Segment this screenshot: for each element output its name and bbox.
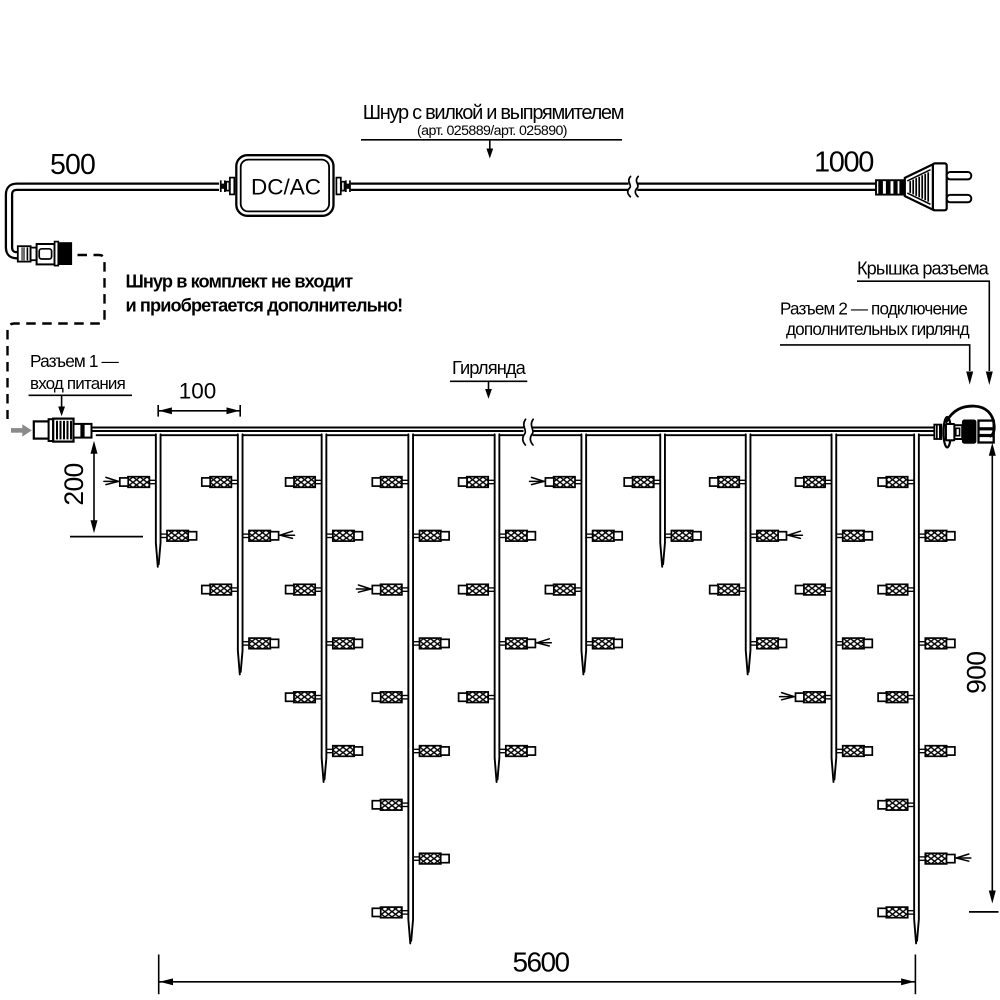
svg-text:Крышка разъема: Крышка разъема: [857, 259, 990, 279]
svg-text:дополнительных гирлянд: дополнительных гирлянд: [786, 319, 970, 339]
svg-text:Шнур в комплект не входит: Шнур в комплект не входит: [126, 272, 354, 292]
svg-text:100: 100: [179, 379, 217, 404]
svg-text:(арт. 025889/арт. 025890): (арт. 025889/арт. 025890): [417, 123, 567, 139]
svg-text:5600: 5600: [512, 947, 569, 978]
svg-text:DC/AC: DC/AC: [251, 174, 321, 199]
svg-text:Разъем 1 —: Разъем 1 —: [30, 351, 119, 371]
svg-text:Гирлянда: Гирлянда: [452, 357, 527, 378]
svg-text:вход питания: вход питания: [30, 374, 126, 393]
svg-text:1000: 1000: [814, 147, 873, 179]
svg-text:Шнур с вилкой и выпрямителем: Шнур с вилкой и выпрямителем: [363, 102, 624, 124]
svg-text:200: 200: [59, 463, 89, 505]
svg-text:500: 500: [50, 149, 95, 181]
svg-text:900: 900: [962, 652, 992, 694]
svg-text:Разъем 2 — подключение: Разъем 2 — подключение: [780, 300, 967, 319]
svg-text:и приобретается дополнительно!: и приобретается дополнительно!: [126, 296, 403, 316]
